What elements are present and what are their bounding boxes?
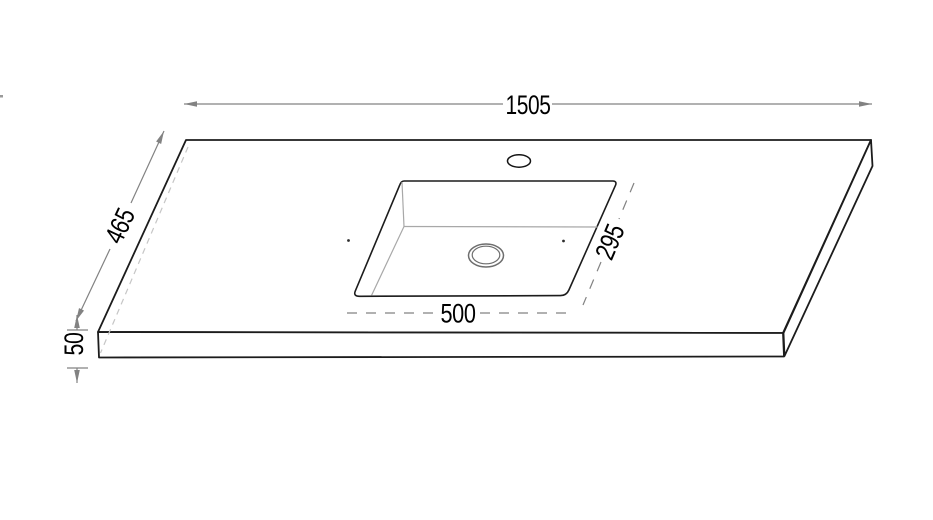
dimension-overall-width: 1505 xyxy=(184,90,872,120)
dimension-label-465: 465 xyxy=(99,204,141,248)
dimension-label-500: 500 xyxy=(441,299,476,329)
dimension-label-1505: 1505 xyxy=(506,90,551,120)
reference-point-left xyxy=(347,239,350,242)
faucet-hole xyxy=(508,155,531,167)
stray-mark xyxy=(0,95,3,98)
dimension-line-upper xyxy=(131,131,164,203)
reference-point-right xyxy=(562,240,565,243)
dimension-thickness: 50 xyxy=(59,315,89,383)
basin-bottom-back-edge xyxy=(404,227,598,228)
dimension-line-lower xyxy=(76,249,110,321)
countertop-technical-drawing: 1505 465 50 500 295 xyxy=(0,0,933,520)
dimension-label-50: 50 xyxy=(59,333,89,356)
drawing-canvas: 1505 465 50 500 295 xyxy=(0,0,933,520)
countertop-front-face xyxy=(98,332,784,358)
